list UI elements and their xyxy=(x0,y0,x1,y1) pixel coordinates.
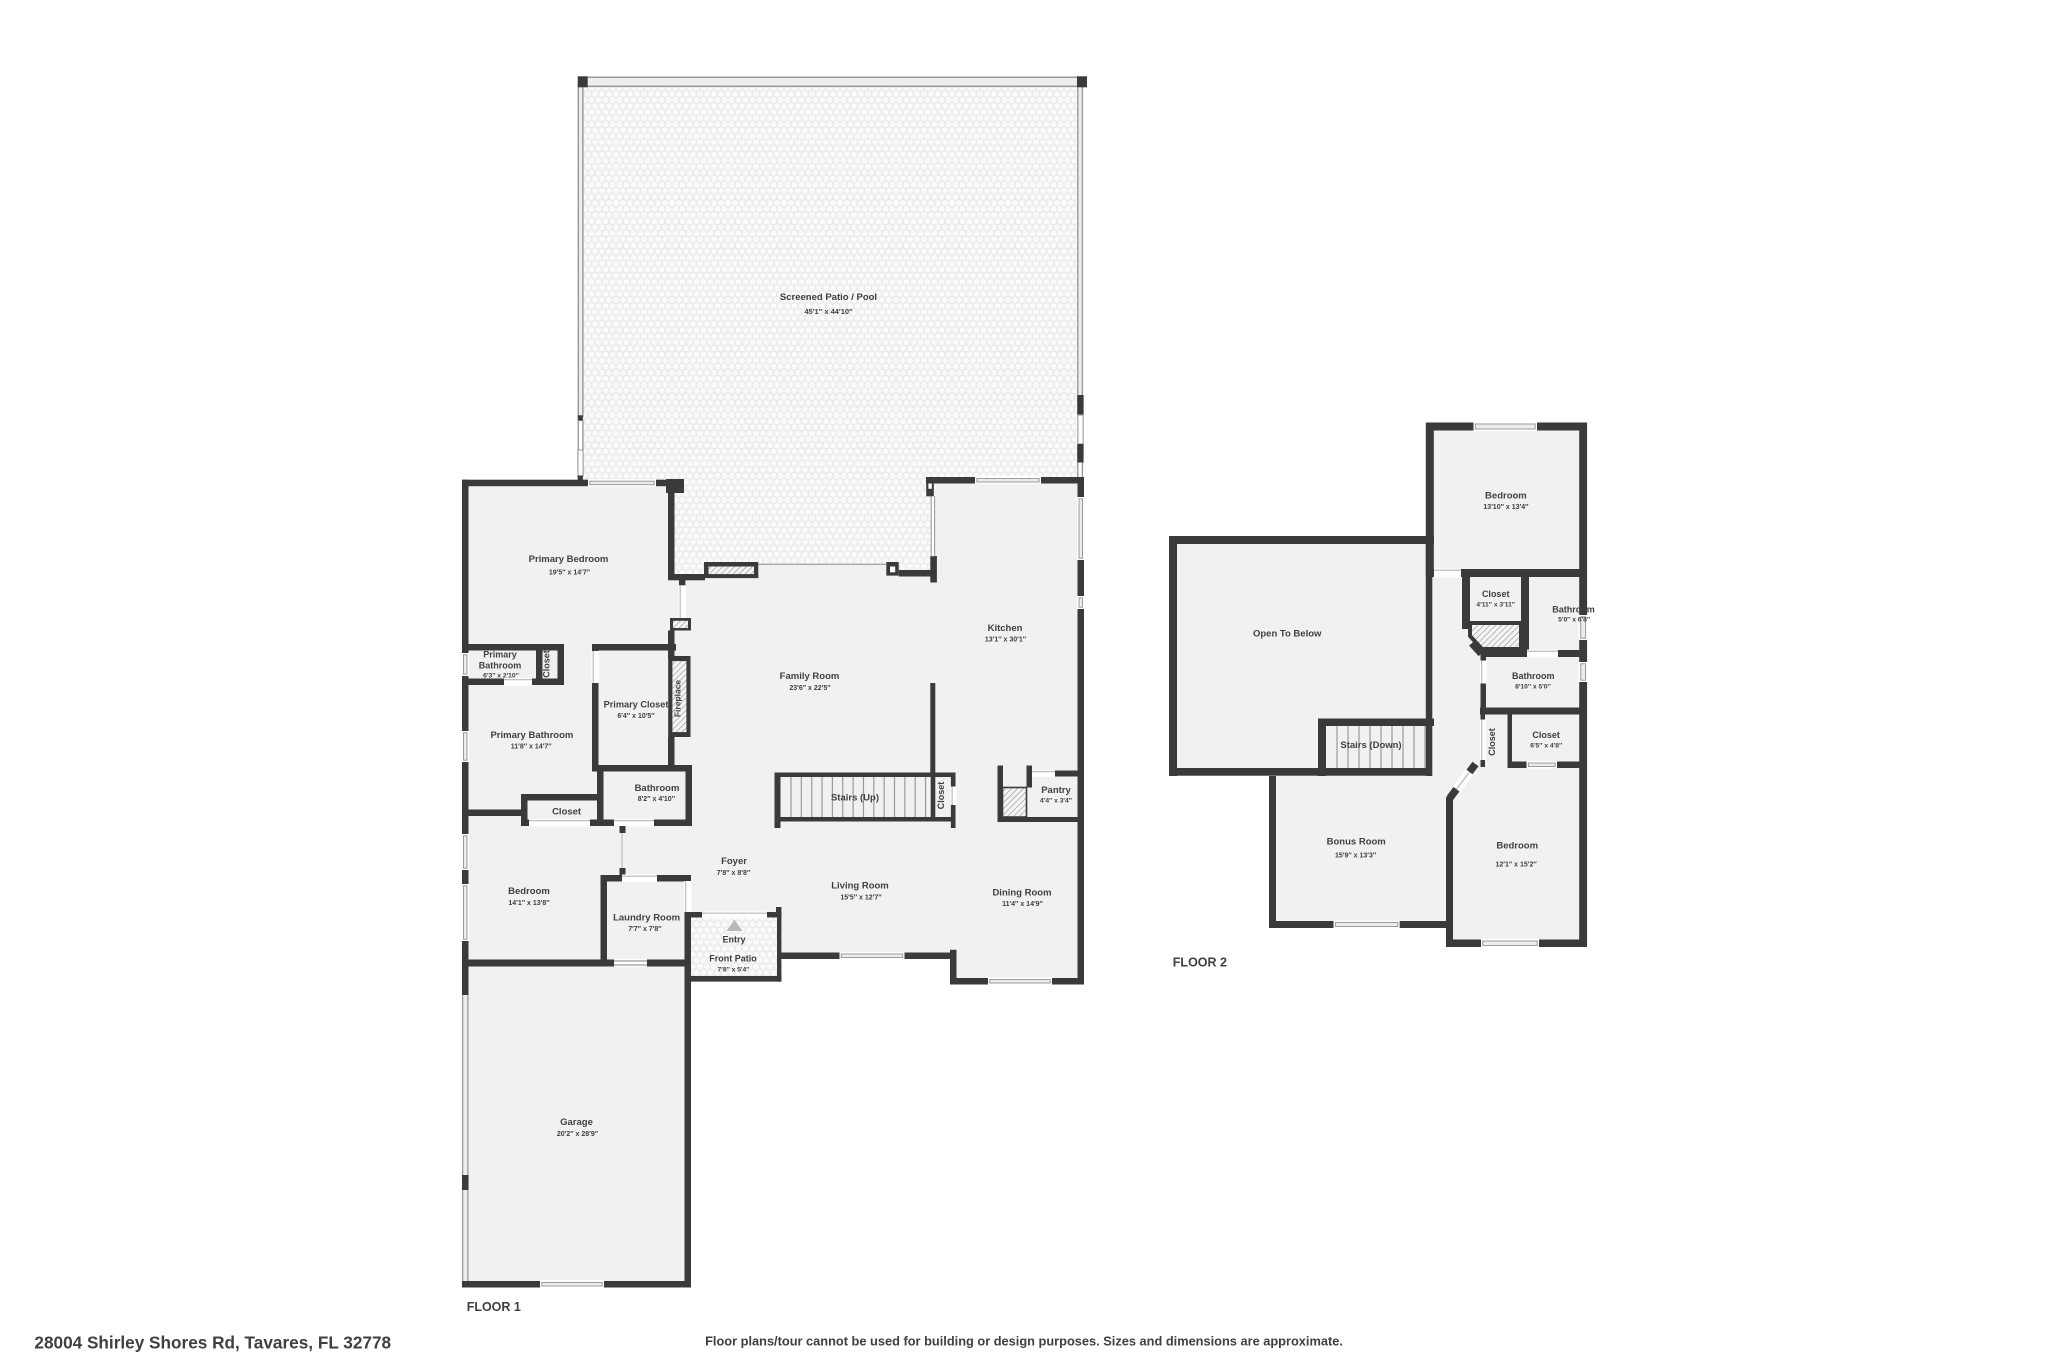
svg-text:19′5″ x 14′7″: 19′5″ x 14′7″ xyxy=(549,570,591,577)
svg-text:Primary: Primary xyxy=(483,650,517,660)
svg-text:Front Patio: Front Patio xyxy=(709,954,757,964)
svg-text:FLOOR 1: FLOOR 1 xyxy=(467,1300,521,1314)
svg-text:6′4″ x 10′5″: 6′4″ x 10′5″ xyxy=(617,713,655,720)
svg-text:8′2″ x 4′10″: 8′2″ x 4′10″ xyxy=(638,796,676,803)
svg-text:Bedroom: Bedroom xyxy=(1496,841,1538,852)
svg-text:Pantry: Pantry xyxy=(1041,785,1071,796)
svg-text:Dining Room: Dining Room xyxy=(992,888,1051,899)
svg-text:Bathroom: Bathroom xyxy=(635,783,680,794)
svg-text:Primary Bedroom: Primary Bedroom xyxy=(529,554,609,565)
svg-text:Closet: Closet xyxy=(542,650,552,678)
svg-text:FLOOR 2: FLOOR 2 xyxy=(1173,956,1227,970)
svg-text:Living Room: Living Room xyxy=(831,881,889,892)
svg-text:Stairs (Up): Stairs (Up) xyxy=(831,793,879,804)
svg-text:Closet: Closet xyxy=(1532,730,1560,740)
svg-text:8′10″ x 5′0″: 8′10″ x 5′0″ xyxy=(1515,684,1551,691)
svg-text:Laundry Room: Laundry Room xyxy=(613,913,680,924)
svg-text:6′3″ x 2′10″: 6′3″ x 2′10″ xyxy=(483,673,519,680)
svg-text:13′1″ x 30′1″: 13′1″ x 30′1″ xyxy=(985,637,1027,644)
svg-text:Bathroom: Bathroom xyxy=(479,661,522,671)
svg-text:Primary Closet: Primary Closet xyxy=(604,700,669,710)
svg-text:15′9″ x 13′3″: 15′9″ x 13′3″ xyxy=(1335,853,1377,860)
svg-text:6′5″ x 4′8″: 6′5″ x 4′8″ xyxy=(1530,743,1563,750)
svg-text:Open To Below: Open To Below xyxy=(1253,629,1322,640)
svg-text:20′2″ x 28′9″: 20′2″ x 28′9″ xyxy=(557,1131,599,1138)
svg-text:Bedroom: Bedroom xyxy=(1485,491,1527,502)
svg-text:Closet: Closet xyxy=(1482,589,1510,599)
svg-text:11′4″ x 14′9″: 11′4″ x 14′9″ xyxy=(1002,901,1043,908)
svg-text:12′1″ x 15′2″: 12′1″ x 15′2″ xyxy=(1495,862,1537,869)
svg-text:4′11″ x 3′11″: 4′11″ x 3′11″ xyxy=(1476,602,1515,609)
svg-text:14′1″ x 13′8″: 14′1″ x 13′8″ xyxy=(508,900,550,907)
svg-text:5′0″ x 6′8″: 5′0″ x 6′8″ xyxy=(1558,617,1591,624)
svg-text:23′6″ x 22′5″: 23′6″ x 22′5″ xyxy=(789,685,831,692)
svg-text:45′1″ x 44′10″: 45′1″ x 44′10″ xyxy=(804,307,853,316)
svg-text:15′5″ x 12′7″: 15′5″ x 12′7″ xyxy=(840,895,882,902)
svg-text:Primary Bathroom: Primary Bathroom xyxy=(490,730,573,741)
svg-text:4′4″ x 3′4″: 4′4″ x 3′4″ xyxy=(1040,798,1073,805)
svg-text:7′7″ x 7′8″: 7′7″ x 7′8″ xyxy=(628,926,662,933)
svg-text:7′8″ x 5′4″: 7′8″ x 5′4″ xyxy=(718,967,751,974)
svg-text:13′10″ x 13′4″: 13′10″ x 13′4″ xyxy=(1483,504,1529,511)
svg-text:Screened Patio / Pool: Screened Patio / Pool xyxy=(780,292,877,303)
svg-text:Closet: Closet xyxy=(1487,728,1497,756)
svg-text:Floor plans/tour cannot be use: Floor plans/tour cannot be used for buil… xyxy=(705,1334,1343,1349)
svg-text:Bonus Room: Bonus Room xyxy=(1327,837,1386,848)
svg-text:Bedroom: Bedroom xyxy=(508,886,550,897)
svg-text:11′8″ x 14′7″: 11′8″ x 14′7″ xyxy=(511,744,552,751)
svg-text:Foyer: Foyer xyxy=(721,856,747,867)
svg-text:Stairs (Down): Stairs (Down) xyxy=(1340,740,1401,751)
svg-text:Entry: Entry xyxy=(722,935,745,945)
svg-text:7′8″ x 8′8″: 7′8″ x 8′8″ xyxy=(717,870,751,877)
svg-text:Closet: Closet xyxy=(552,807,582,818)
svg-text:Bathroom: Bathroom xyxy=(1512,671,1555,681)
svg-text:28004 Shirley Shores Rd, Tavar: 28004 Shirley Shores Rd, Tavares, FL 327… xyxy=(34,1333,391,1353)
svg-text:Fireplace: Fireplace xyxy=(673,680,683,718)
svg-text:Closet: Closet xyxy=(936,782,946,810)
svg-text:Garage: Garage xyxy=(560,1117,593,1128)
svg-text:Family Room: Family Room xyxy=(780,671,840,682)
svg-text:Bathroom: Bathroom xyxy=(1552,605,1595,615)
svg-text:Kitchen: Kitchen xyxy=(988,623,1023,634)
